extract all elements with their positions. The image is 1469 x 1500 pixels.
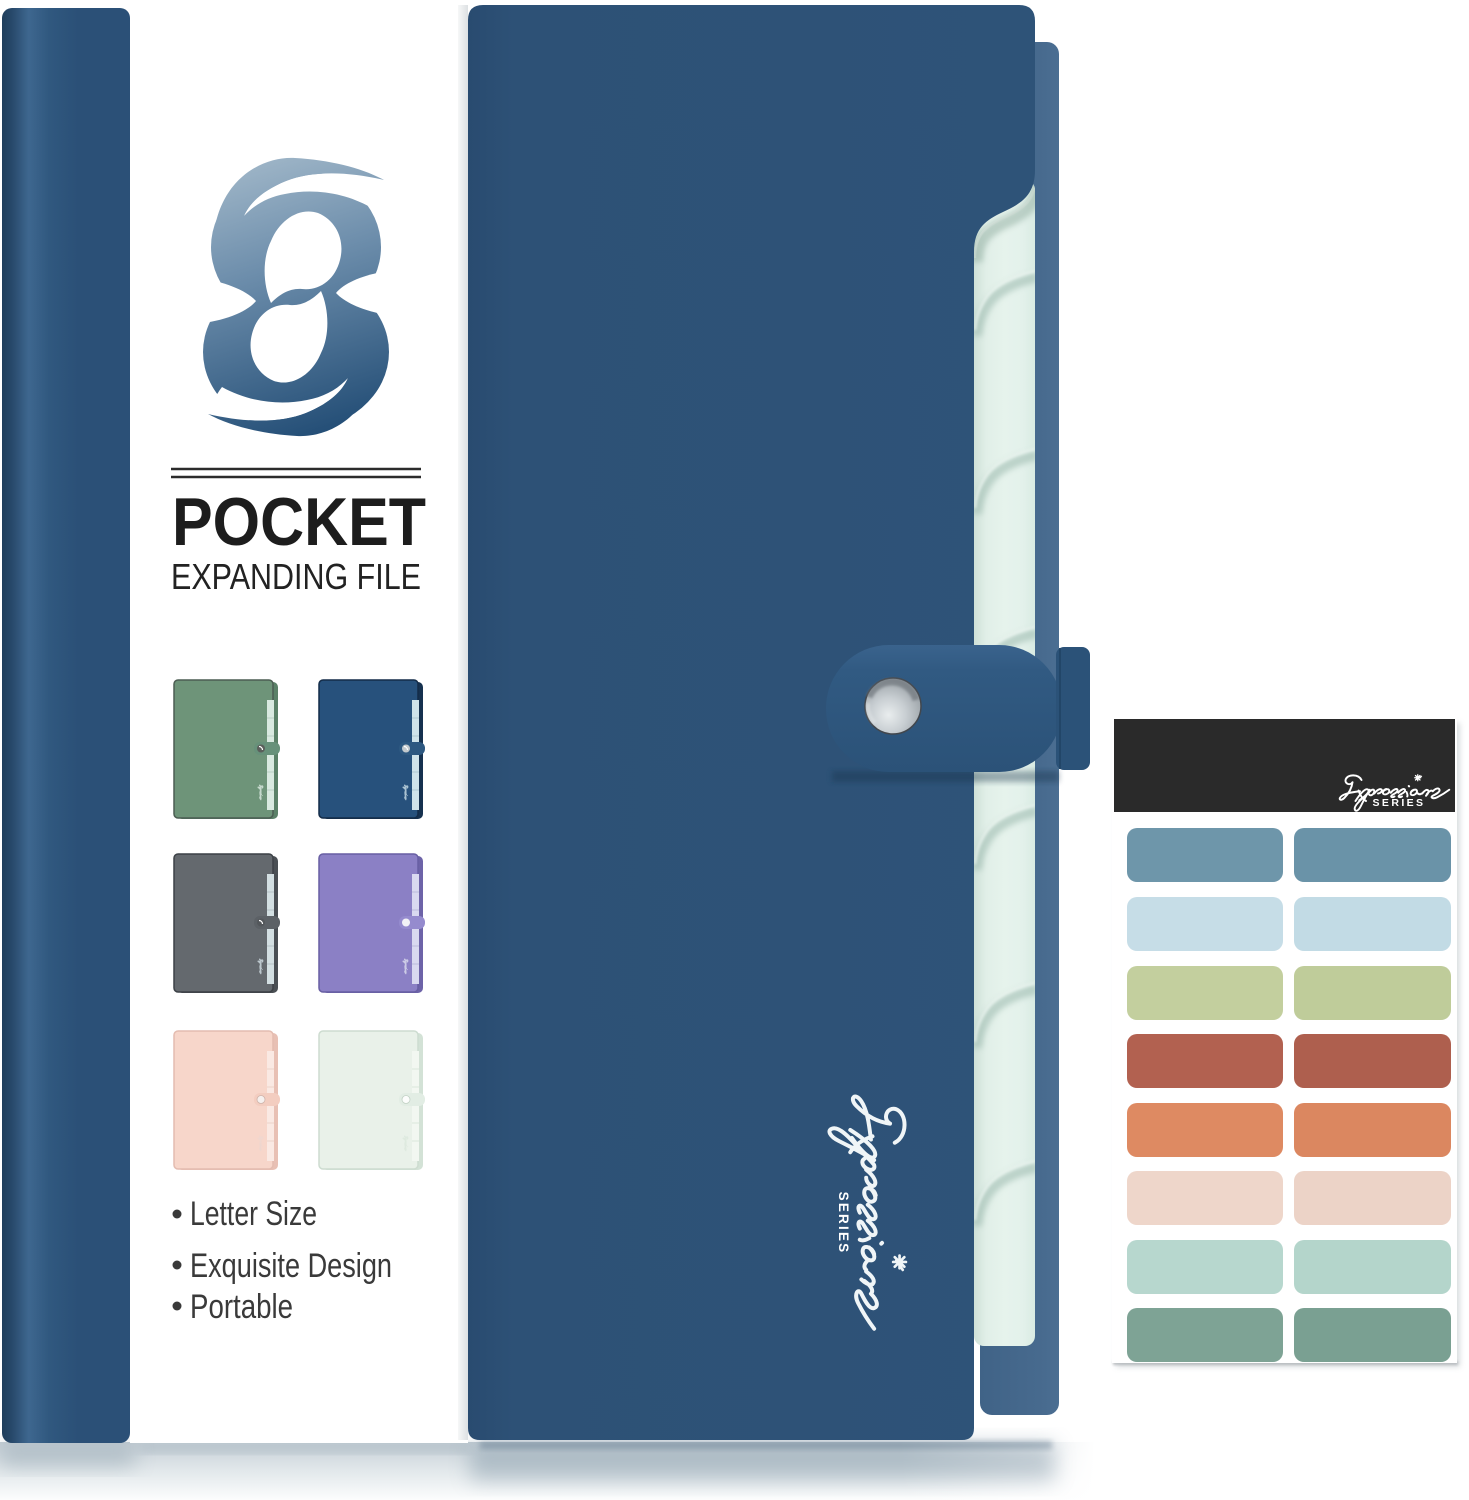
svg-text:SERIES: SERIES [1373,797,1426,809]
svg-text:Letter Size: Letter Size [190,1195,317,1233]
svg-text:Portable: Portable [190,1288,293,1326]
svg-text:EXPANDING FILE: EXPANDING FILE [171,556,421,597]
svg-text:POCKET: POCKET [172,484,426,560]
svg-text:SERIES: SERIES [836,1192,851,1255]
svg-text:Exquisite Design: Exquisite Design [190,1247,392,1285]
